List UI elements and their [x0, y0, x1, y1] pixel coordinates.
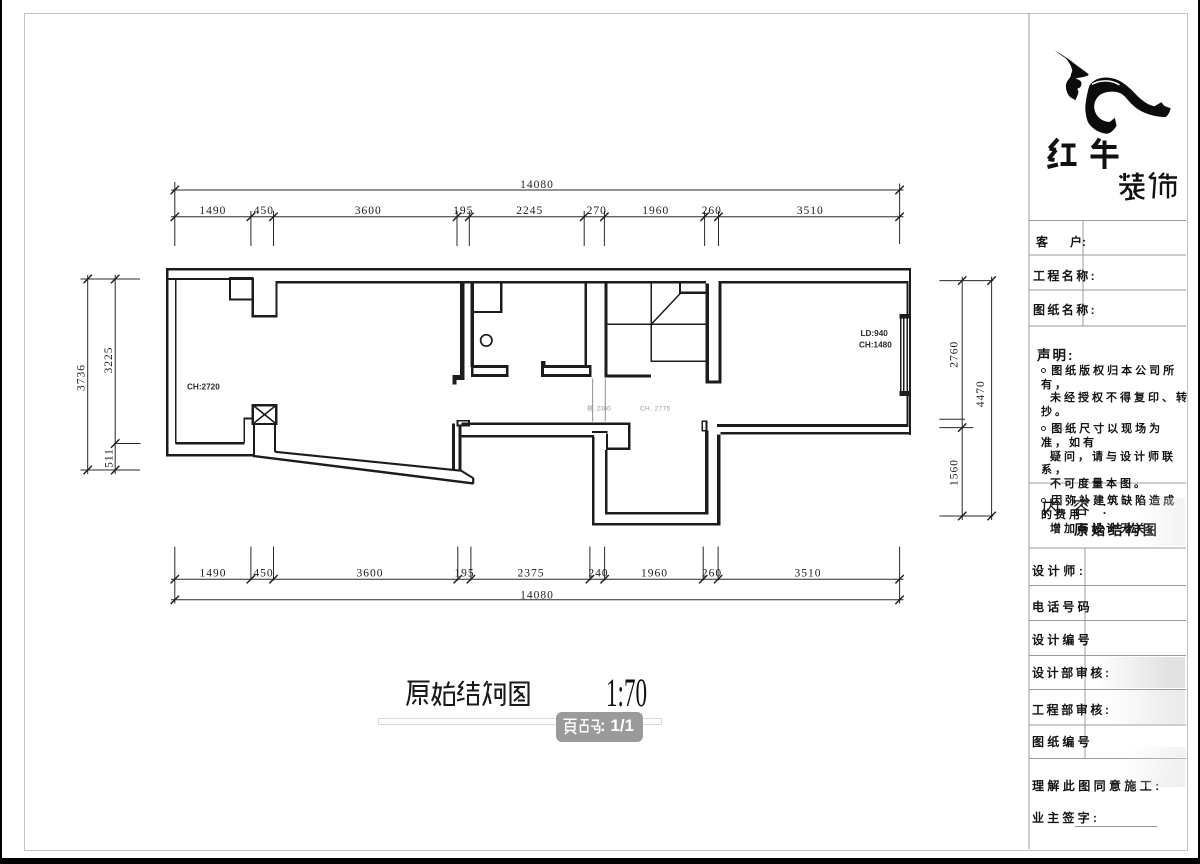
svg-text:260: 260 — [702, 205, 722, 217]
svg-text:1490: 1490 — [199, 205, 226, 217]
svg-text:LD:940: LD:940 — [861, 329, 889, 338]
svg-text:2375: 2375 — [518, 568, 545, 580]
svg-text:CH:2720: CH:2720 — [187, 383, 220, 392]
svg-text:14080: 14080 — [520, 590, 554, 602]
svg-text:3736: 3736 — [76, 364, 88, 391]
svg-text:511: 511 — [104, 448, 116, 468]
svg-text:2760: 2760 — [949, 341, 961, 368]
svg-text:1490: 1490 — [200, 568, 227, 580]
svg-text:2245: 2245 — [516, 205, 543, 217]
svg-text:梯. 2360: 梯. 2360 — [587, 404, 611, 413]
svg-text:270: 270 — [587, 205, 607, 217]
svg-text:240: 240 — [588, 568, 608, 580]
svg-text:1560: 1560 — [949, 459, 961, 486]
svg-text:14080: 14080 — [520, 179, 554, 191]
svg-text:195: 195 — [454, 568, 474, 580]
svg-text:3225: 3225 — [103, 347, 115, 374]
svg-text:CH. 2775: CH. 2775 — [640, 406, 671, 413]
svg-text:1960: 1960 — [642, 205, 669, 217]
svg-text:CH:1480: CH:1480 — [859, 340, 892, 349]
svg-text:3600: 3600 — [357, 568, 384, 580]
svg-text:3600: 3600 — [355, 205, 382, 217]
svg-text:1960: 1960 — [641, 568, 668, 580]
svg-text:3510: 3510 — [795, 568, 822, 580]
svg-text:4470: 4470 — [975, 380, 987, 407]
svg-text:195: 195 — [453, 205, 473, 217]
svg-text:3510: 3510 — [797, 205, 824, 217]
svg-text:260: 260 — [702, 568, 722, 580]
svg-text:450: 450 — [254, 205, 274, 217]
svg-text:450: 450 — [253, 568, 273, 580]
